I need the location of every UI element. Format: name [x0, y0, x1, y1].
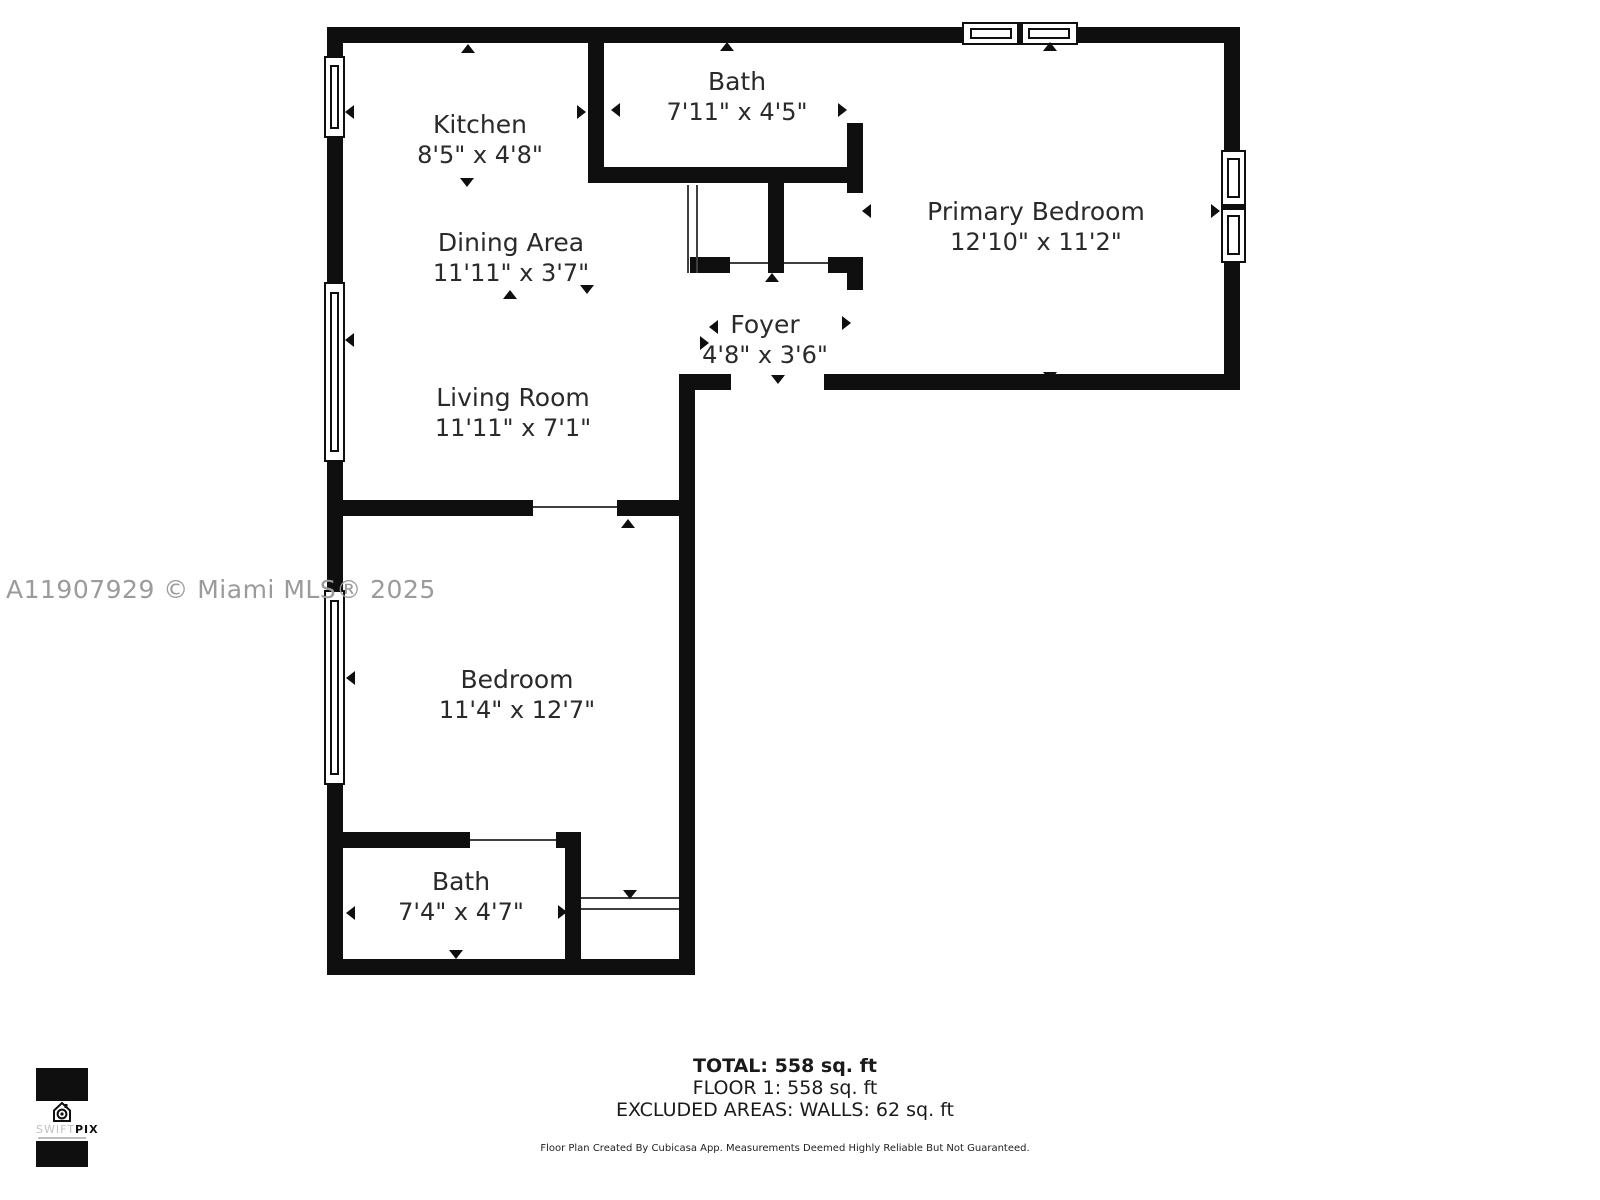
floor-plan: Kitchen 8'5" x 4'8" Bath 7'11" x 4'5" Pr…: [0, 0, 1600, 1200]
measure-arrow-icon: [558, 905, 567, 919]
room-name: Dining Area: [433, 227, 589, 258]
logo-brand-left: SWIFT: [36, 1123, 75, 1136]
disclaimer-text: Floor Plan Created By Cubicasa App. Meas…: [0, 1143, 1570, 1155]
room-name: Bath: [666, 66, 807, 97]
room-name: Living Room: [435, 382, 591, 413]
measure-arrow-icon: [451, 838, 465, 847]
window-mullion: [1017, 24, 1023, 43]
mls-watermark: A11907929 © Miami MLS® 2025: [6, 575, 436, 604]
window-mullion: [1223, 204, 1244, 210]
measure-arrow-icon: [681, 671, 690, 685]
window-pane: [1227, 215, 1240, 255]
measure-arrow-icon: [1211, 204, 1220, 218]
wall: [565, 832, 581, 959]
room-name: Bath: [398, 866, 524, 897]
room-dimensions: 11'4" x 12'7": [439, 695, 595, 726]
measure-arrow-icon: [621, 519, 635, 528]
measure-arrow-icon: [1043, 42, 1057, 51]
wall: [824, 374, 1240, 390]
window: [1221, 150, 1246, 263]
house-camera-icon: [36, 1101, 88, 1123]
room-dimensions: 12'10" x 11'2": [927, 227, 1145, 258]
wall: [847, 123, 863, 193]
room-dimensions: 11'11" x 7'1": [435, 413, 591, 444]
window-double: [962, 22, 1078, 45]
logo-brand-text: SWIFTPIX: [36, 1123, 88, 1136]
floor-area-text: FLOOR 1: 558 sq. ft: [0, 1077, 1570, 1099]
opening-line: [687, 185, 689, 273]
area-summary: TOTAL: 558 sq. ft FLOOR 1: 558 sq. ft EX…: [0, 1055, 1570, 1155]
measure-arrow-icon: [765, 273, 779, 282]
measure-arrow-icon: [623, 890, 637, 899]
closet-door-line: [730, 262, 768, 264]
measure-arrow-icon: [720, 42, 734, 51]
room-dimensions: 4'8" x 3'6": [702, 340, 828, 371]
total-area-text: TOTAL: 558 sq. ft: [0, 1055, 1570, 1077]
measure-arrow-icon: [449, 950, 463, 959]
measure-arrow-icon: [771, 375, 785, 384]
closet-door-line: [581, 908, 679, 910]
window-pane: [330, 292, 339, 452]
wall: [327, 959, 695, 975]
window-pane: [330, 65, 339, 129]
opening-line: [696, 185, 698, 273]
measure-arrow-icon: [838, 103, 847, 117]
wall: [327, 832, 470, 848]
measure-arrow-icon: [346, 906, 355, 920]
wall: [828, 257, 863, 273]
room-dimensions: 7'11" x 4'5": [666, 97, 807, 128]
door-opening-line: [470, 839, 556, 841]
room-label-dining-area: Dining Area 11'11" x 3'7": [433, 227, 589, 289]
window-pane: [1227, 158, 1240, 198]
room-dimensions: 8'5" x 4'8": [417, 140, 543, 171]
wall: [327, 27, 1240, 43]
measure-arrow-icon: [862, 204, 871, 218]
room-label-living-room: Living Room 11'11" x 7'1": [435, 382, 591, 444]
room-name: Primary Bedroom: [927, 196, 1145, 227]
measure-arrow-icon: [1043, 372, 1057, 381]
room-label-bath-bottom: Bath 7'4" x 4'7": [398, 866, 524, 928]
measure-arrow-icon: [611, 103, 620, 117]
window-pane: [330, 600, 339, 775]
window-pane: [970, 28, 1012, 39]
room-label-foyer: Foyer 4'8" x 3'6": [702, 309, 828, 371]
wall: [768, 183, 784, 273]
logo-top-square: [36, 1068, 88, 1101]
wall: [617, 500, 695, 516]
room-name: Foyer: [702, 309, 828, 340]
wall: [327, 500, 533, 516]
room-label-kitchen: Kitchen 8'5" x 4'8": [417, 109, 543, 171]
window: [324, 56, 345, 138]
window-pane: [1028, 28, 1070, 39]
room-label-primary-bedroom: Primary Bedroom 12'10" x 11'2": [927, 196, 1145, 258]
measure-arrow-icon: [461, 44, 475, 53]
window: [324, 282, 345, 462]
swiftpix-logo: SWIFTPIX: [36, 1068, 88, 1167]
measure-arrow-icon: [346, 671, 355, 685]
window: [324, 590, 345, 785]
measure-arrow-icon: [842, 316, 851, 330]
closet-door-line: [784, 262, 828, 264]
measure-arrow-icon: [460, 178, 474, 187]
wall: [588, 27, 604, 183]
room-label-bath-top: Bath 7'11" x 4'5": [666, 66, 807, 128]
room-dimensions: 11'11" x 3'7": [433, 258, 589, 289]
measure-arrow-icon: [510, 503, 524, 512]
room-name: Kitchen: [417, 109, 543, 140]
room-dimensions: 7'4" x 4'7": [398, 897, 524, 928]
door-opening-line: [533, 506, 617, 508]
measure-arrow-icon: [345, 105, 354, 119]
logo-bottom-square: [36, 1141, 88, 1167]
room-label-bedroom: Bedroom 11'4" x 12'7": [439, 664, 595, 726]
excluded-area-text: EXCLUDED AREAS: WALLS: 62 sq. ft: [0, 1099, 1570, 1121]
measure-arrow-icon: [577, 105, 586, 119]
logo-tagline-bar: [38, 1137, 86, 1139]
measure-arrow-icon: [503, 290, 517, 299]
logo-brand-right: PIX: [75, 1123, 99, 1136]
measure-arrow-icon: [720, 170, 734, 179]
measure-arrow-icon: [345, 333, 354, 347]
room-name: Bedroom: [439, 664, 595, 695]
